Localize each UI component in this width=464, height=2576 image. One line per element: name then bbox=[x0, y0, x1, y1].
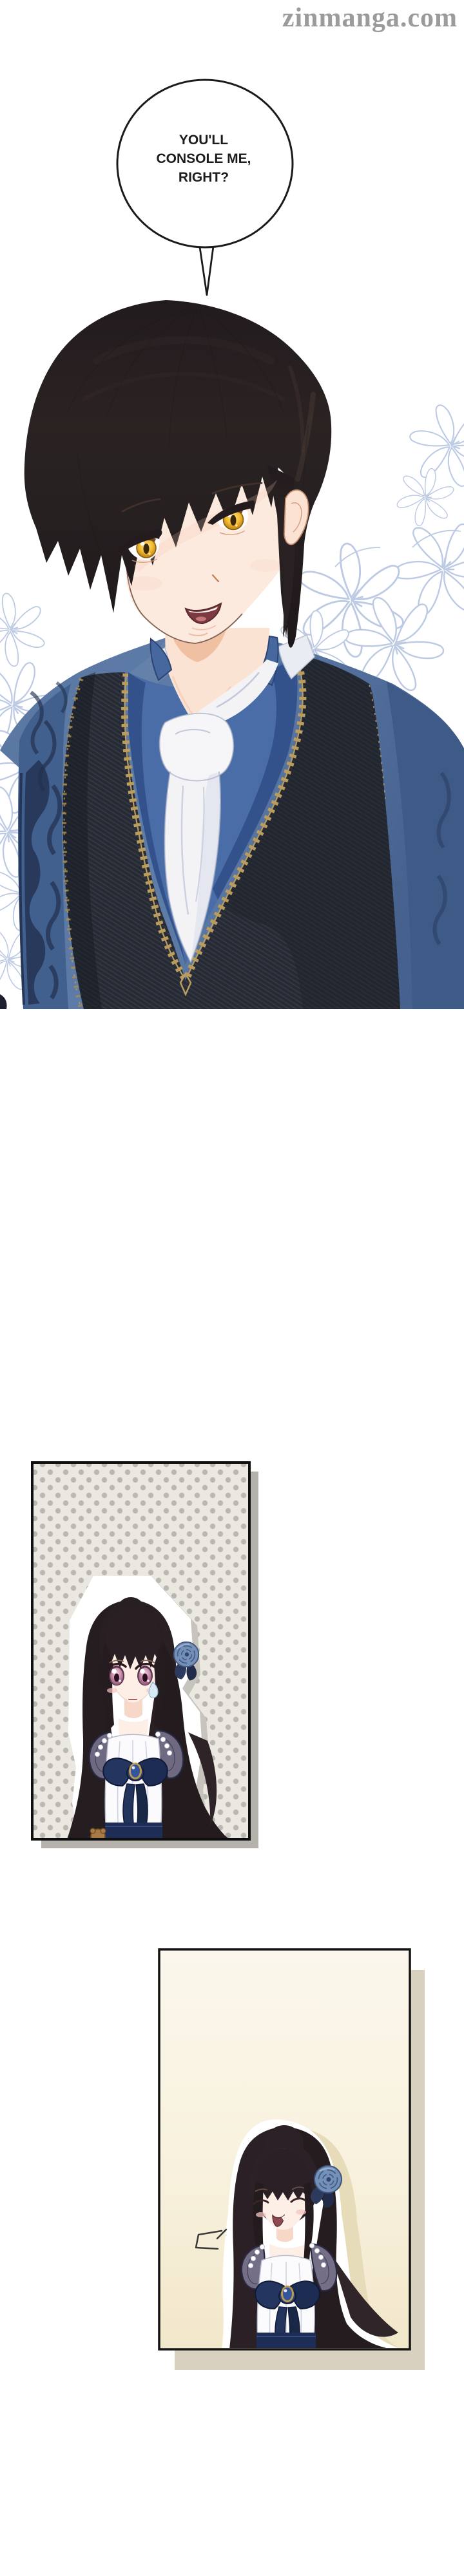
svg-text:zinmanga.com: zinmanga.com bbox=[282, 3, 458, 33]
svg-text:RIGHT?: RIGHT? bbox=[179, 170, 229, 185]
svg-text:YOU'LL: YOU'LL bbox=[179, 133, 228, 147]
svg-text:CONSOLE ME,: CONSOLE ME, bbox=[156, 151, 251, 166]
